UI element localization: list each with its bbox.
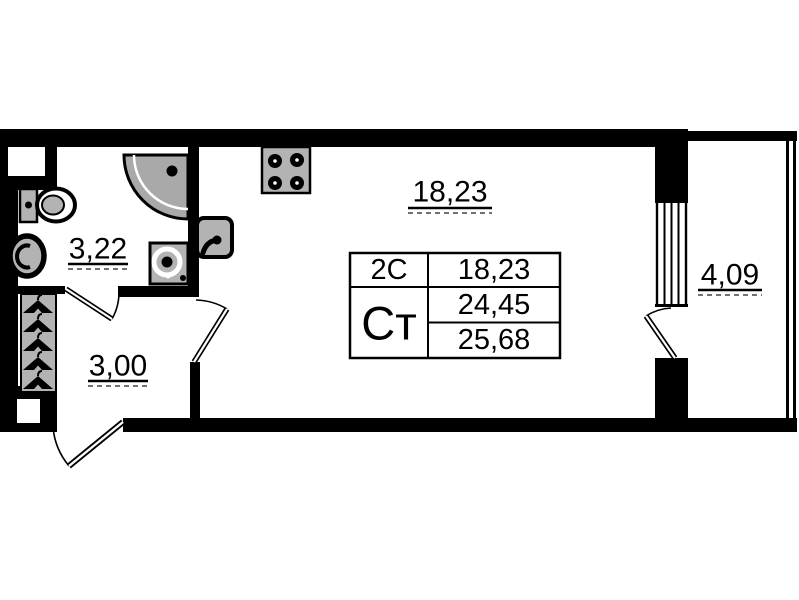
stamp-total-area-with-balcony: 25,68	[458, 324, 531, 356]
wall-balcony-right-inner	[793, 141, 796, 418]
wardrobe-hangers-icon	[21, 294, 56, 392]
shower-icon	[124, 155, 188, 219]
balcony-window-icon	[655, 200, 688, 307]
bathroom-area-label: 3,22	[69, 233, 127, 266]
shower-drain-icon	[167, 166, 178, 177]
wall-bottom	[123, 418, 797, 432]
bathroom-door-swing-icon	[66, 289, 119, 319]
wall-divider-bottom-block	[655, 358, 688, 432]
stamp-type-code: 2С	[370, 254, 407, 286]
hall-area-label: 3,00	[89, 350, 147, 383]
wall-balcony-right-outer	[786, 141, 789, 418]
living-area-label: 18,23	[412, 176, 487, 209]
entry-shaft-notch	[17, 399, 40, 423]
washing-machine-icon	[150, 243, 188, 284]
stamp-table: 2С Ст 18,23 24,45 25,68	[350, 253, 560, 358]
wall-hall-right	[190, 362, 200, 420]
stamp-total-area: 24,45	[458, 289, 531, 321]
stamp-living-area: 18,23	[458, 254, 531, 286]
toilet-icon	[20, 189, 75, 223]
wall-divider-top-block	[655, 129, 688, 200]
floor-plan: 18,23 3,22 3,00 4,09 2С Ст 18,23 24,45 2…	[0, 0, 799, 600]
balcony-area-label: 4,09	[701, 259, 759, 292]
stamp-studio-abbr: Ст	[361, 297, 416, 350]
entrance-door-swing-icon	[53, 422, 123, 466]
kitchen-sink-icon	[197, 218, 232, 257]
balcony-door-swing-icon	[646, 308, 675, 358]
stove-icon	[262, 147, 310, 193]
wall-top	[0, 129, 657, 147]
wall-left-upper	[0, 129, 8, 191]
shaft-wall-right	[45, 147, 57, 178]
bathroom-sink-icon	[10, 236, 44, 276]
wall-bathroom-bottom-left	[18, 286, 65, 294]
wall-balcony-top	[688, 131, 797, 141]
room-door-swing-icon	[194, 300, 227, 362]
wall-bathroom-bottom-right	[118, 286, 199, 297]
